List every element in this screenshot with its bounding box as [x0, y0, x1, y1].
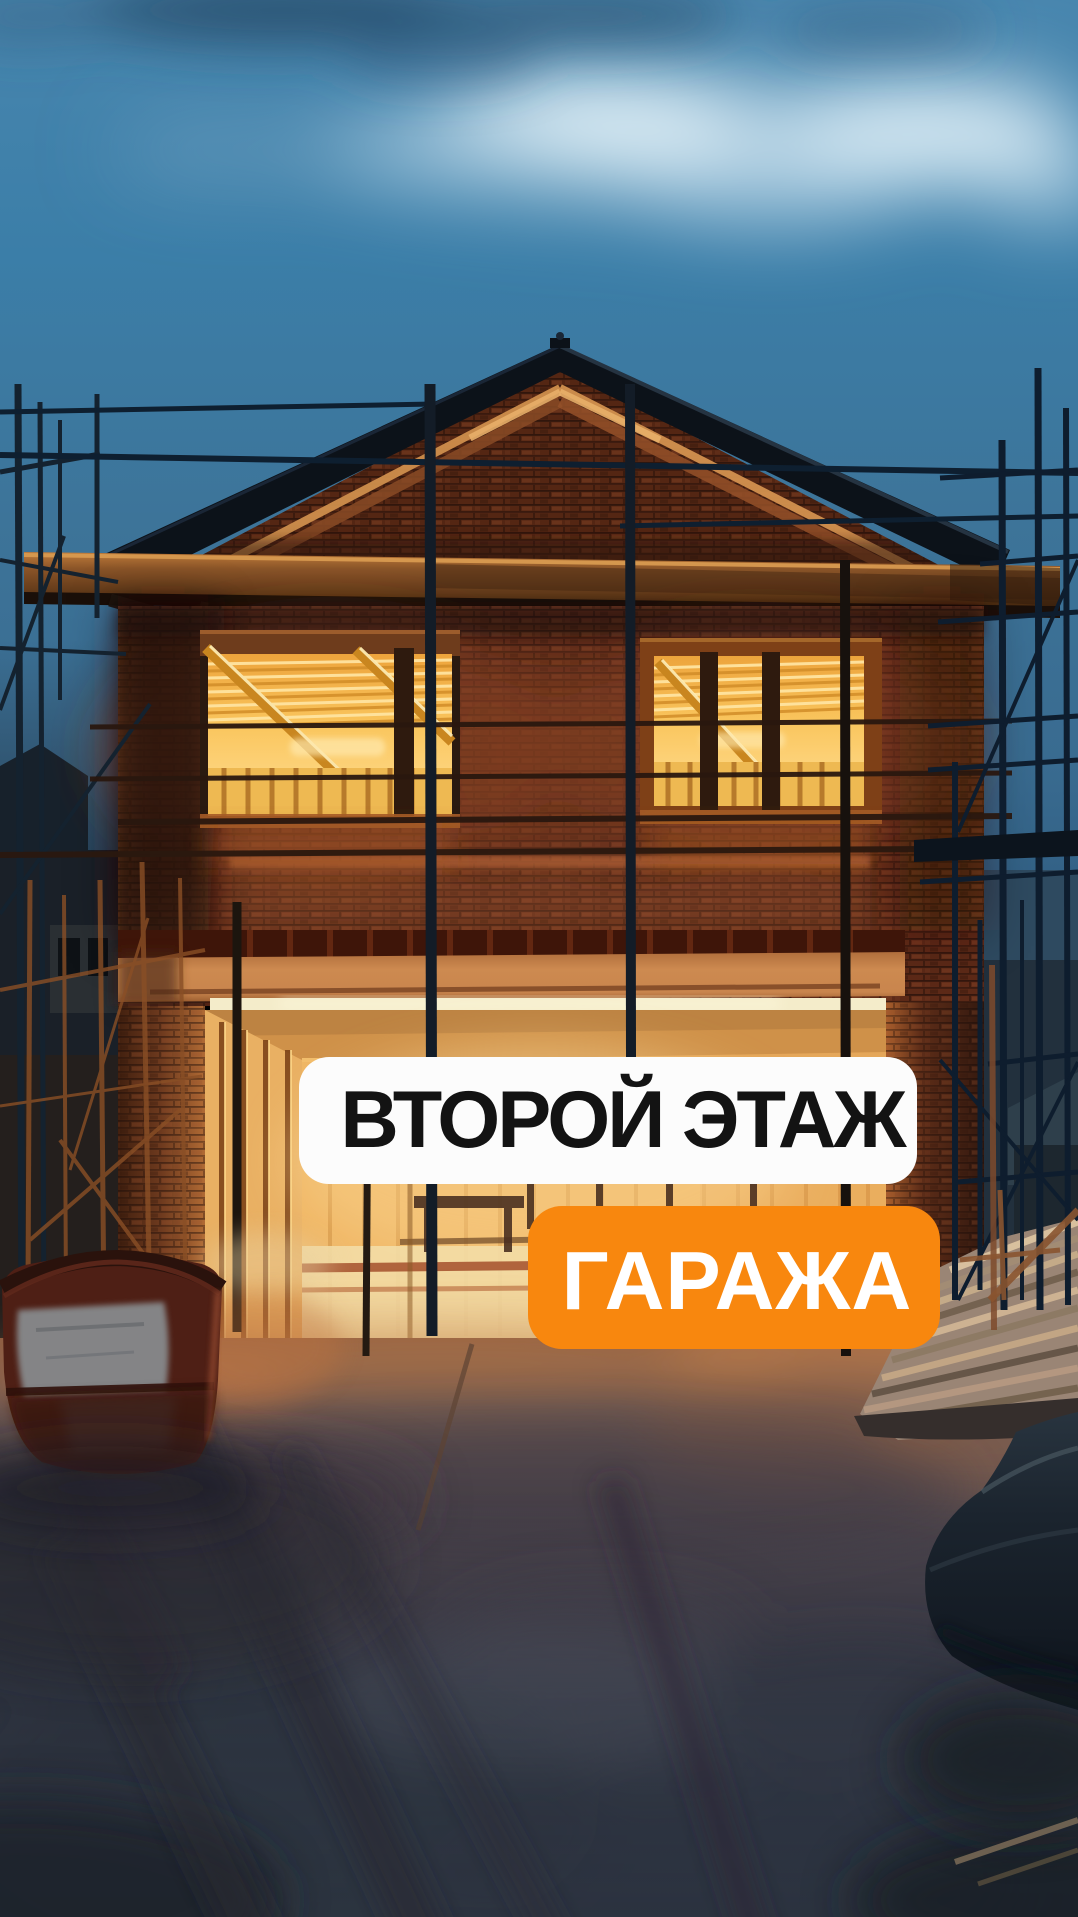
svg-text:ГАРАЖА: ГАРАЖА — [562, 1234, 913, 1327]
svg-text:ВТОРОЙ ЭТАЖ: ВТОРОЙ ЭТАЖ — [340, 1073, 907, 1165]
